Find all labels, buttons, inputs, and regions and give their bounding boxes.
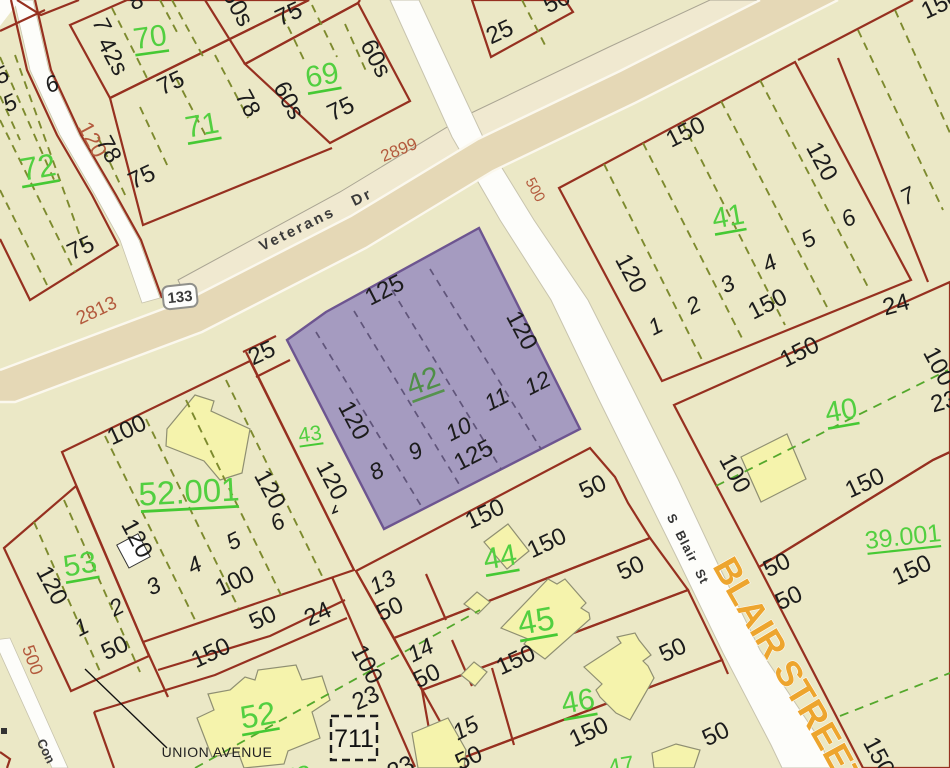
svg-text:UNION AVENUE: UNION AVENUE	[162, 744, 273, 760]
svg-text:711: 711	[334, 725, 374, 753]
svg-text:133: 133	[167, 288, 194, 308]
